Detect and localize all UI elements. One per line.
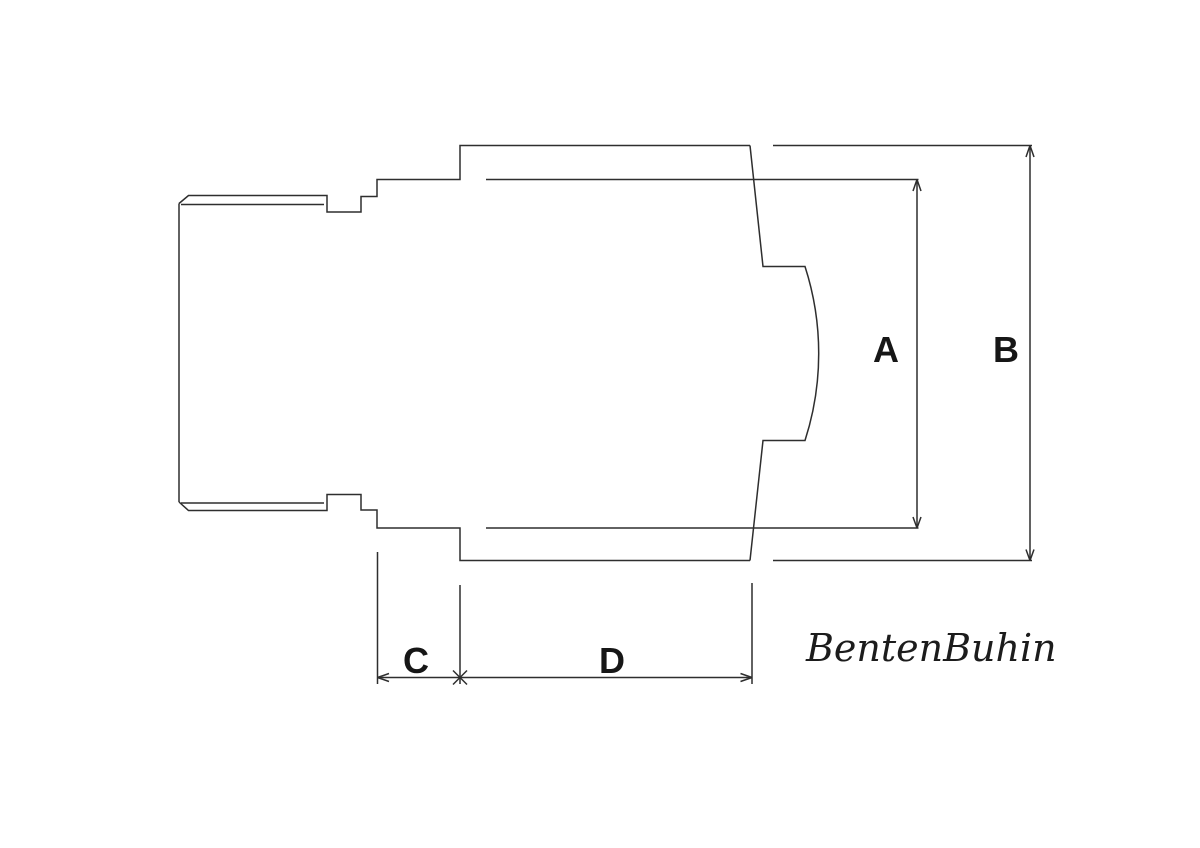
brand-signature: BentenBuhin [806, 629, 1057, 667]
socket-break-profile [750, 146, 819, 561]
drawing-canvas: A B C D BentenBuhin [0, 0, 1200, 848]
dimension-label-c: C [403, 643, 429, 679]
fitting-technical-drawing [0, 0, 1200, 848]
dimension-label-a: A [873, 332, 899, 368]
end-face-inner-lines [181, 205, 324, 504]
dimension-label-b: B [993, 332, 1019, 368]
dimension-label-d: D [599, 643, 625, 679]
